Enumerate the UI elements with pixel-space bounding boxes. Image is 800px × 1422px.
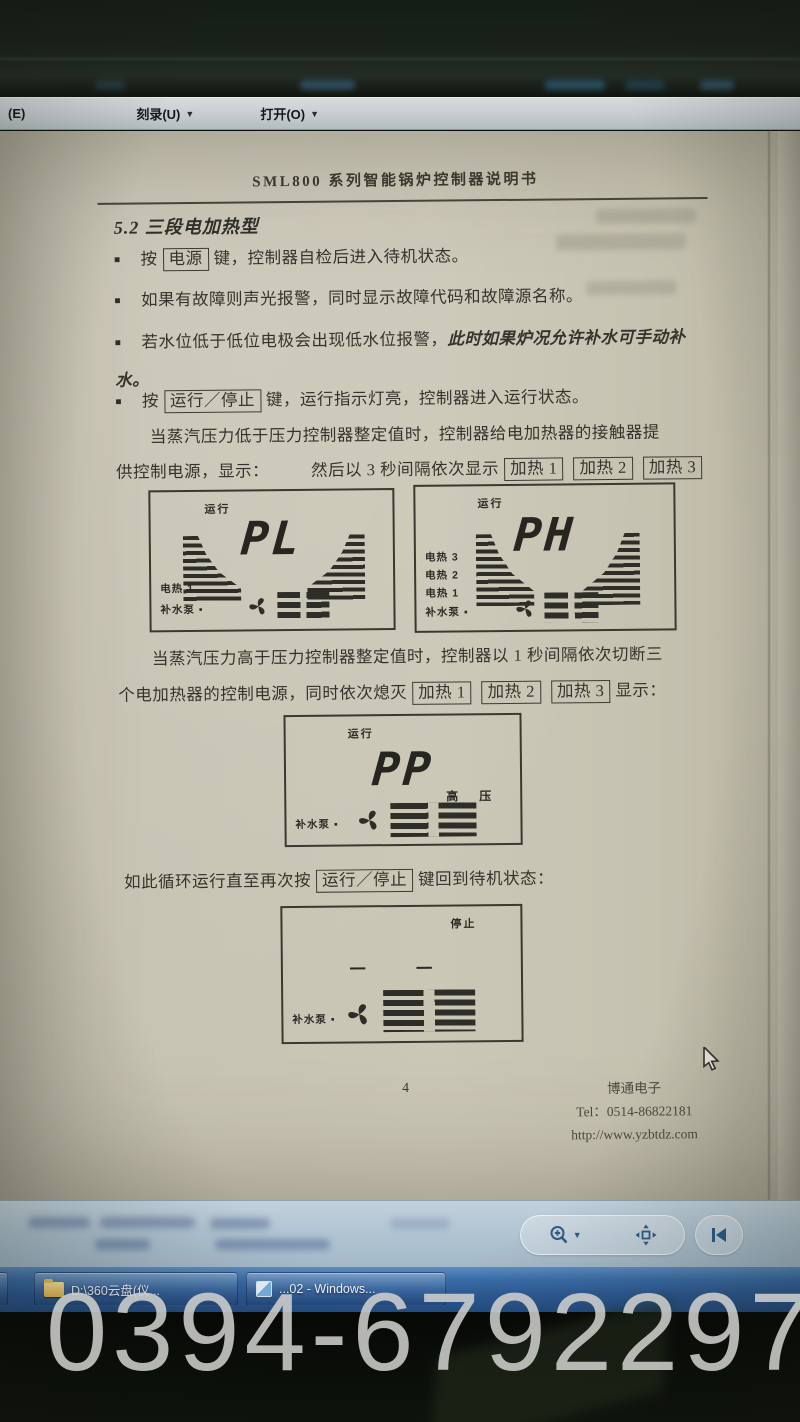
bullet-marker: ■ bbox=[114, 296, 121, 307]
blurred-status-text bbox=[95, 1239, 150, 1250]
blurred-status-text bbox=[100, 1217, 195, 1228]
chevron-down-icon: ▼ bbox=[310, 109, 319, 119]
key-heat2: 加热 2 bbox=[573, 457, 633, 480]
para-high-line2: 个电加热器的控制电源，同时依次熄灭加热 1加热 2加热 3显示： bbox=[118, 676, 666, 707]
zoom-controls-group: ▼ bbox=[520, 1215, 685, 1255]
lcd-panel-pl: 运行 PL 电热 1 补水泵 ▪ bbox=[148, 488, 395, 632]
lcd-label-pump: 补水泵 ▪ bbox=[160, 602, 203, 617]
fan-icon bbox=[354, 805, 384, 835]
menu-item-label: 打开(O) bbox=[260, 104, 305, 123]
company-url: http://www.yzbtdz.com bbox=[524, 1122, 744, 1147]
menu-item-open[interactable]: 打开(O) ▼ bbox=[252, 100, 327, 127]
lcd-label-heat2: 电热 2 bbox=[425, 567, 459, 582]
lcd-status: 运行 bbox=[348, 725, 374, 741]
lcd-label-pump: 补水泵 ▪ bbox=[292, 1012, 335, 1027]
lcd-label-pump: 补水泵 ▪ bbox=[295, 817, 338, 832]
monitor-stand-shadow bbox=[430, 1299, 669, 1422]
document-content: SML800 系列智能锅炉控制器说明书 5.2 三段电加热型 ■按电源键，控制器… bbox=[0, 127, 800, 1204]
viewer-toolbar: ▼ bbox=[0, 1200, 800, 1267]
ink-bleed bbox=[586, 280, 676, 295]
bullet-power: ■按电源键，控制器自检后进入待机状态。 bbox=[114, 242, 469, 271]
key-power: 电源 bbox=[163, 248, 209, 271]
taskbar-button-explorer[interactable]: D:\360云盘(仪... bbox=[34, 1272, 238, 1306]
lcd-label-heat1: 电热 1 bbox=[160, 581, 194, 596]
fan-icon bbox=[343, 998, 375, 1030]
previous-group bbox=[695, 1215, 743, 1255]
bullet-run-stop: ■按运行／停止键，运行指示灯亮，控制器进入运行状态。 bbox=[115, 383, 589, 413]
company-name: 博通电子 bbox=[524, 1076, 744, 1101]
photo-viewer-menubar: (E) 刻录(U) ▼ 打开(O) ▼ bbox=[0, 97, 800, 130]
key-heat3: 加热 3 bbox=[643, 456, 703, 479]
blurred-status-text bbox=[390, 1218, 450, 1229]
monitor-bezel-bottom bbox=[0, 1312, 800, 1422]
bullet-marker: ■ bbox=[114, 255, 121, 266]
windows-taskbar: D:\360云盘(仪... ...02 - Windows... bbox=[0, 1267, 800, 1312]
photo-viewer-icon bbox=[256, 1281, 272, 1297]
menu-item-label: 刻录(U) bbox=[136, 104, 180, 123]
key-run-stop: 运行／停止 bbox=[164, 389, 261, 413]
fan-icon bbox=[245, 593, 271, 619]
lcd-label-heat1: 电热 1 bbox=[425, 585, 459, 600]
bullet-marker: ■ bbox=[115, 325, 122, 362]
key-run-stop: 运行／停止 bbox=[316, 869, 413, 893]
lcd-panel-ph: 运行 PH 电热 3 电热 2 电热 1 补水泵 ▪ bbox=[413, 482, 676, 633]
taskbar-button-label: ...02 - Windows... bbox=[279, 1282, 376, 1296]
chevron-down-icon: ▼ bbox=[573, 1230, 582, 1240]
taskbar-button-partial[interactable] bbox=[0, 1272, 8, 1306]
para-high-line1: 当蒸汽压力高于压力控制器整定值时，控制器以 1 秒间隔依次切断三 bbox=[152, 640, 663, 669]
company-tel: Tel：0514-86822181 bbox=[524, 1099, 744, 1124]
ink-bleed bbox=[596, 208, 696, 224]
fan-icon bbox=[512, 596, 538, 622]
page-number: 4 bbox=[402, 1081, 409, 1097]
photo-of-monitor: (E) 刻录(U) ▼ 打开(O) ▼ SML800 系列智能锅炉控制器说明书 … bbox=[0, 0, 800, 1422]
heater-bars-icon bbox=[544, 592, 598, 623]
blurred-status-text bbox=[28, 1217, 90, 1228]
heater-bars-icon bbox=[390, 802, 476, 837]
taskbar-button-label: D:\360云盘(仪... bbox=[71, 1280, 160, 1299]
heater-bars-icon bbox=[277, 592, 329, 620]
heater-bars-icon bbox=[383, 989, 475, 1032]
company-block: 博通电子 Tel：0514-86822181 http://www.yzbtdz… bbox=[524, 1076, 745, 1147]
folder-icon bbox=[44, 1282, 64, 1297]
scanned-document-page: SML800 系列智能锅炉控制器说明书 5.2 三段电加热型 ■按电源键，控制器… bbox=[0, 131, 800, 1200]
previous-button[interactable] bbox=[709, 1226, 729, 1244]
fit-to-window-button[interactable] bbox=[635, 1224, 657, 1246]
bezel-reflection bbox=[0, 58, 800, 60]
loop-instruction: 如此循环运行直至再次按运行／停止键回到待机状态： bbox=[124, 865, 554, 895]
monitor-bezel-top bbox=[0, 0, 800, 97]
menu-item-file-partial[interactable]: (E) bbox=[0, 102, 33, 125]
key-heat1: 加热 1 bbox=[504, 457, 564, 480]
lcd-label-pump: 补水泵 ▪ bbox=[425, 604, 468, 619]
bezel-glints bbox=[0, 80, 800, 94]
blurred-status-text bbox=[210, 1218, 270, 1229]
document-title: SML800 系列智能锅炉控制器说明书 bbox=[0, 165, 795, 194]
para-low-line2: 供控制电源，显示：然后以 3 秒间隔依次显示加热 1加热 2加热 3 bbox=[116, 453, 707, 484]
lcd-panel-stop: 停止 – – 补水泵 ▪ bbox=[280, 904, 523, 1044]
taskbar-button-photo-viewer[interactable]: ...02 - Windows... bbox=[246, 1272, 446, 1306]
lcd-panel-pp: 运行 PP 高 压 补水泵 ▪ bbox=[283, 713, 522, 847]
bullet-fault: ■如果有故障则声光报警，同时显示故障代码和故障源名称。 bbox=[114, 282, 583, 310]
key-heat1: 加热 1 bbox=[412, 681, 472, 704]
mouse-cursor bbox=[702, 1047, 722, 1071]
menu-item-burn[interactable]: 刻录(U) ▼ bbox=[128, 100, 202, 127]
key-heat3: 加热 3 bbox=[551, 680, 611, 703]
lcd-status: 停止 bbox=[450, 915, 476, 931]
zoom-magnifier-button[interactable]: ▼ bbox=[548, 1224, 582, 1246]
title-rule bbox=[98, 197, 708, 205]
blurred-status-text bbox=[215, 1239, 330, 1250]
chevron-down-icon: ▼ bbox=[185, 109, 194, 119]
lcd-value: – – bbox=[283, 948, 521, 984]
lcd-label-heat3: 电热 3 bbox=[425, 549, 459, 564]
bullet-marker: ■ bbox=[115, 397, 122, 408]
menu-item-label: (E) bbox=[8, 106, 25, 121]
para-low-line1: 当蒸汽压力低于压力控制器整定值时，控制器给电加热器的接触器提 bbox=[150, 418, 660, 447]
key-heat2: 加热 2 bbox=[482, 681, 542, 704]
ink-bleed bbox=[556, 233, 686, 250]
section-heading: 5.2 三段电加热型 bbox=[114, 212, 259, 239]
